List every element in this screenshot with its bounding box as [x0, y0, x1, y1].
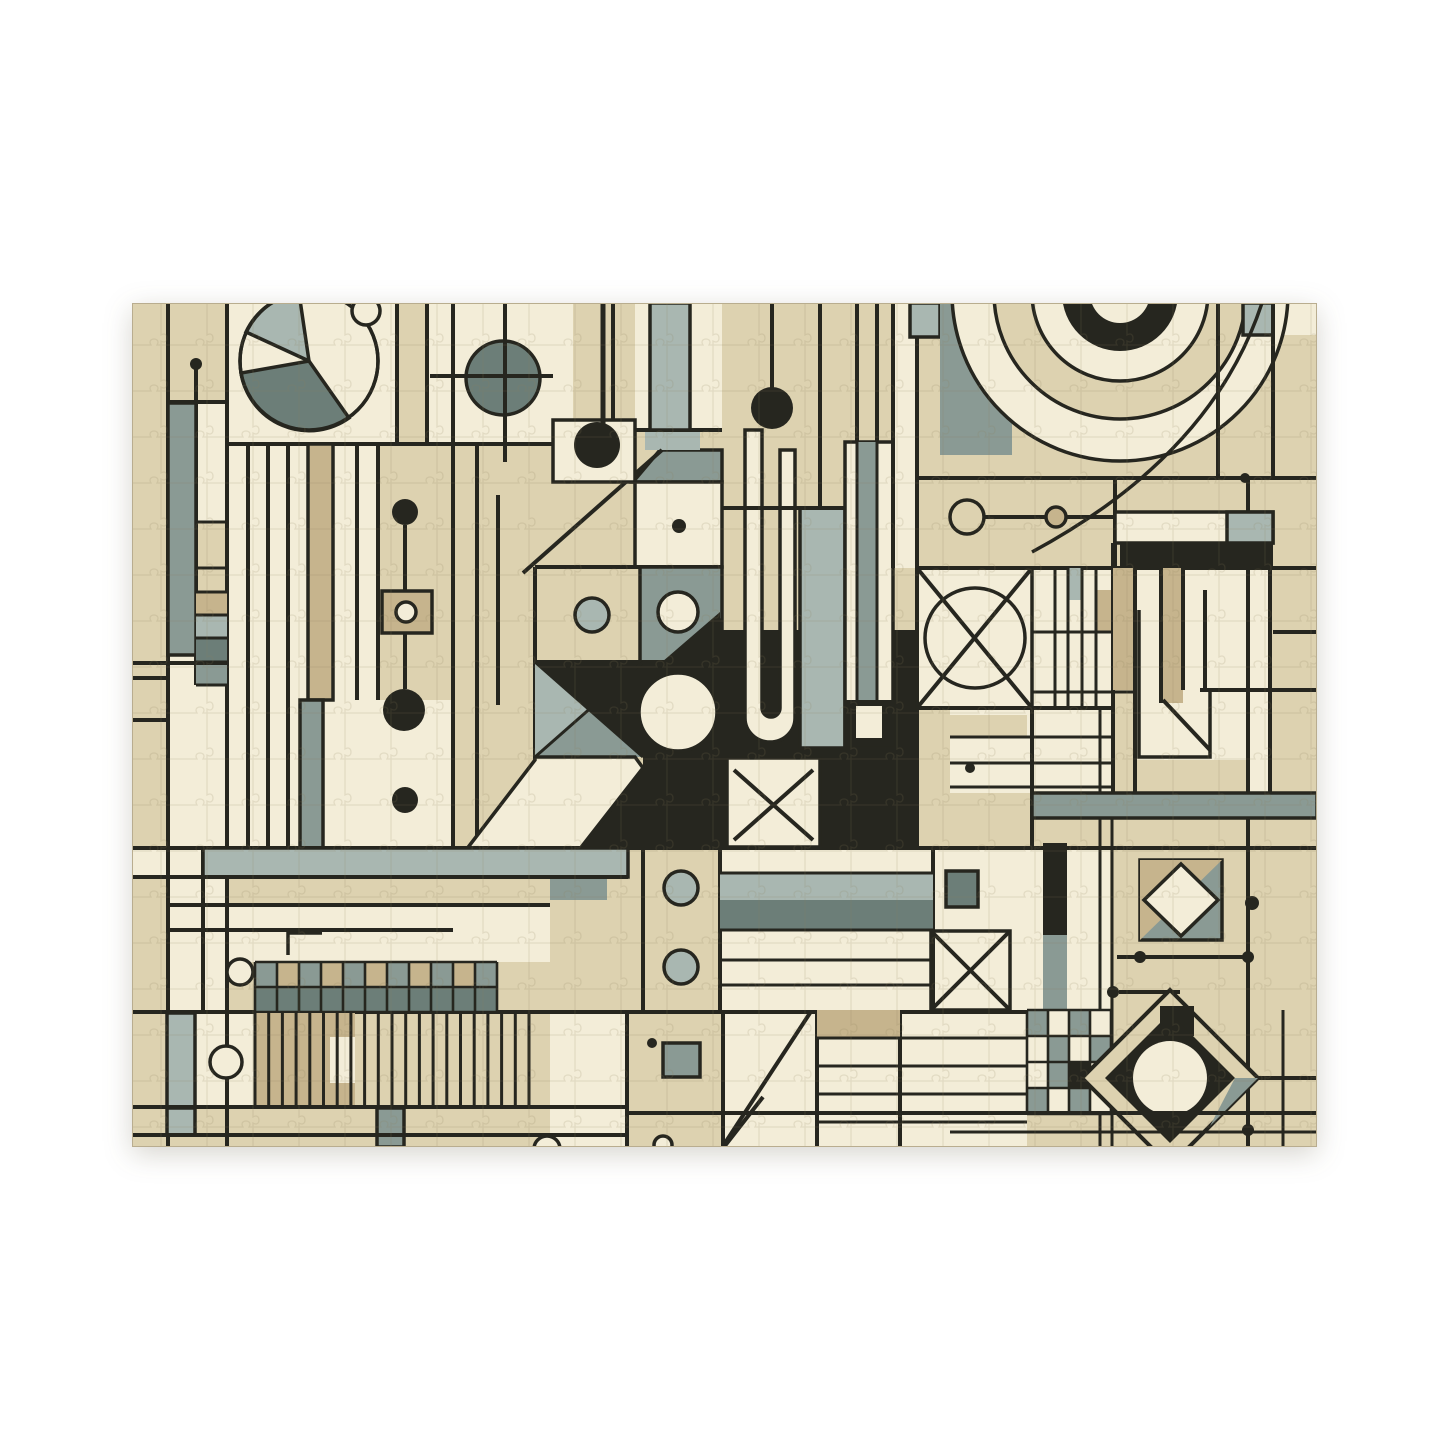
puzzle-texture [132, 303, 1317, 1147]
product-photo: Completed jigsaw puzzle with an abstract… [0, 0, 1445, 1445]
artwork-layer [132, 125, 1317, 1166]
puzzle-artwork [0, 0, 1445, 1445]
